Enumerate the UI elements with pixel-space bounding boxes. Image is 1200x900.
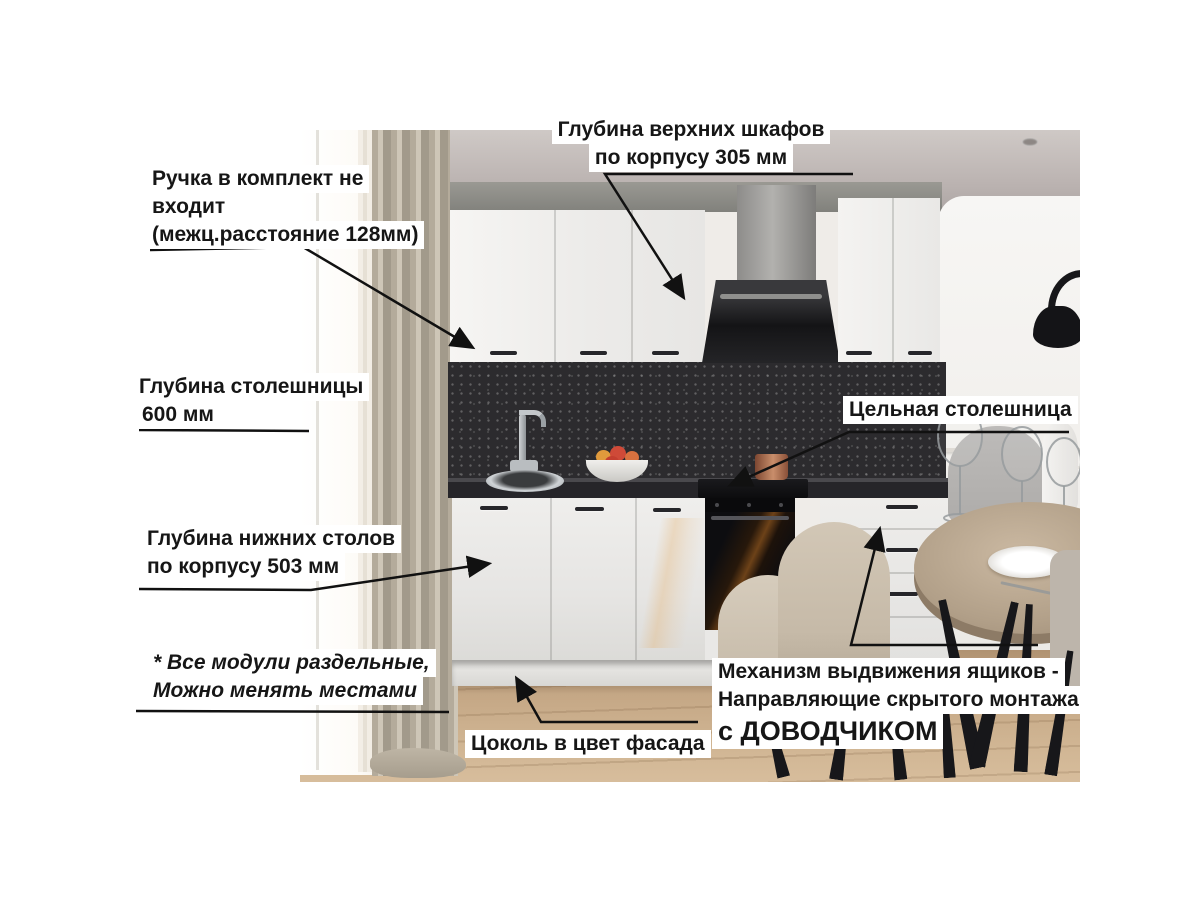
- annotation-line: Цоколь в цвет фасада: [465, 730, 711, 758]
- warm-reflection: [632, 518, 705, 648]
- cabinet-handle: [575, 507, 604, 511]
- drawer-handle: [886, 505, 918, 509]
- leader-worktop-depth: [139, 430, 309, 431]
- annotation-line: (межц.расстояние 128мм): [146, 221, 424, 249]
- annotation-line: Направляющие скрытого монтажа: [712, 686, 1085, 714]
- base-cabinets: [452, 498, 705, 660]
- oven-knob: [715, 503, 719, 507]
- upper-cabinets-right: [838, 198, 940, 362]
- glass-bowl: [1047, 438, 1080, 486]
- annotation-upper-cabinet-depth: Глубина верхних шкафов по корпусу 305 мм: [546, 116, 836, 172]
- annotation-drawers-note: Механизм выдвижения ящиков - Направляющи…: [712, 658, 1085, 749]
- annotation-line: Механизм выдвижения ящиков -: [712, 658, 1065, 686]
- cabinet-handle: [490, 351, 517, 355]
- curtain-puddle: [370, 748, 466, 778]
- drawer-handle: [886, 548, 918, 552]
- drawer-handle: [886, 592, 918, 596]
- annotation-line: Глубина столешницы: [133, 373, 369, 401]
- annotation-line: Можно менять местами: [147, 677, 423, 705]
- hood-chimney: [737, 185, 816, 285]
- annotation-line: с ДОВОДЧИКОМ: [712, 714, 943, 749]
- upper-cabinets-left: [450, 210, 705, 362]
- cabinet-handle: [908, 351, 932, 355]
- annotation-line: по корпусу 503 мм: [141, 553, 345, 581]
- annotation-line: * Все модули раздельные,: [147, 649, 436, 677]
- faucet-spout: [519, 410, 546, 427]
- cabinet-handle: [652, 351, 679, 355]
- hood-body: [702, 280, 840, 363]
- annotated-kitchen-figure: Глубина верхних шкафов по корпусу 305 мм…: [0, 0, 1200, 900]
- annotation-line: Глубина верхних шкафов: [552, 116, 831, 144]
- cabinet-door-seam: [554, 210, 556, 362]
- oven-handle: [711, 516, 789, 520]
- wall-lamp-shade-icon: [1033, 306, 1080, 348]
- annotation-line: 600 мм: [136, 401, 220, 429]
- cabinet-handle: [653, 508, 681, 512]
- cabinet-handle: [480, 506, 508, 510]
- annotation-handle-note: Ручка в комплект не входит (межц.расстоя…: [146, 165, 424, 249]
- oven-knob: [779, 503, 783, 507]
- chair-beige-back: [778, 522, 890, 678]
- annotation-line: Глубина нижних столов: [141, 525, 401, 553]
- annotation-line: Цельная столешница: [843, 396, 1078, 424]
- sink-basin: [486, 470, 564, 492]
- annotation-line: Ручка в комплект не: [146, 165, 369, 193]
- cabinet-door-seam: [550, 498, 552, 660]
- glass-bowl: [1002, 427, 1042, 481]
- annotation-plinth-note: Цоколь в цвет фасада: [465, 730, 711, 758]
- cabinet-handle: [846, 351, 872, 355]
- cabinet-door-seam: [631, 210, 633, 362]
- annotation-solid-worktop: Цельная столешница: [843, 396, 1078, 424]
- ceiling-spot-light: [1022, 138, 1038, 146]
- copper-pot: [755, 454, 788, 480]
- cabinet-door-seam: [892, 198, 894, 362]
- cabinet-handle: [580, 351, 607, 355]
- oven-knob: [747, 503, 751, 507]
- annotation-base-cabinet-depth: Глубина нижних столов по корпусу 503 мм: [141, 525, 401, 581]
- annotation-worktop-depth: Глубина столешницы 600 мм: [133, 373, 369, 429]
- cooktop: [698, 479, 808, 498]
- annotation-line: по корпусу 305 мм: [589, 144, 793, 172]
- hood-handle-strip: [720, 294, 822, 299]
- annotation-modules-note: * Все модули раздельные, Можно менять ме…: [147, 649, 436, 705]
- annotation-line: входит: [146, 193, 231, 221]
